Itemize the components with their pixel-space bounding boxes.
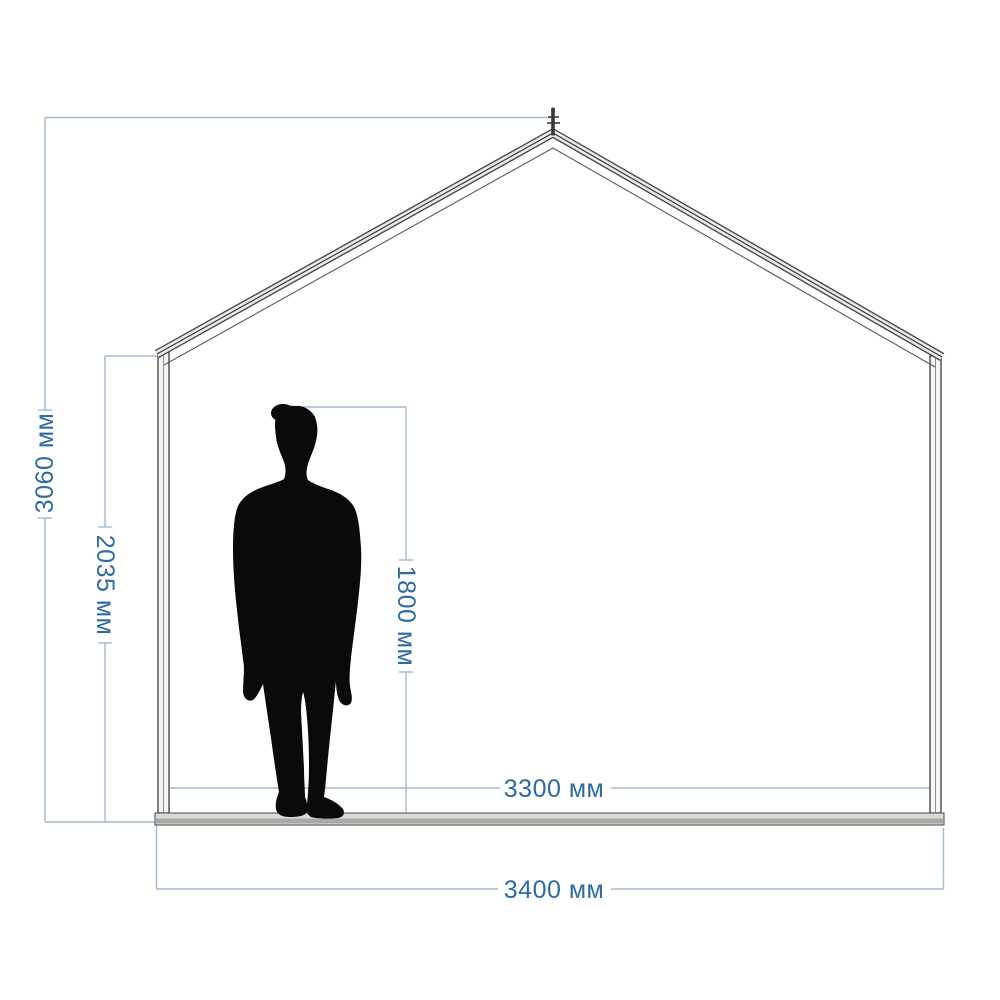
rafter-fill <box>157 133 942 357</box>
person-body <box>233 406 361 819</box>
dimension-outer-width: 3400 мм <box>157 825 944 904</box>
floor-band-shadow <box>156 819 943 824</box>
left-wall <box>158 352 169 813</box>
total-height-label: 3060 мм <box>31 413 59 513</box>
rafter-centerline <box>157 133 942 357</box>
roof-rafters <box>157 133 942 367</box>
dimension-wall-height: 2035 мм <box>91 356 158 822</box>
rafter-outline <box>157 133 942 357</box>
person-silhouette <box>233 404 361 819</box>
rafter-inner-flange <box>164 148 935 367</box>
outer-width-label: 3400 мм <box>504 876 604 904</box>
diagram-svg: 3060 мм 2035 мм 1800 мм 3300 мм 3400 мм <box>0 0 1000 1000</box>
finial-tip <box>551 108 555 112</box>
right-wall <box>930 356 941 813</box>
floor-platform <box>155 813 944 825</box>
wall-height-label: 2035 мм <box>91 535 119 635</box>
house-elevation-diagram: 3060 мм 2035 мм 1800 мм 3300 мм 3400 мм <box>0 0 1000 1000</box>
person-height-label: 1800 мм <box>392 566 420 666</box>
inner-width-label: 3300 мм <box>504 775 604 803</box>
